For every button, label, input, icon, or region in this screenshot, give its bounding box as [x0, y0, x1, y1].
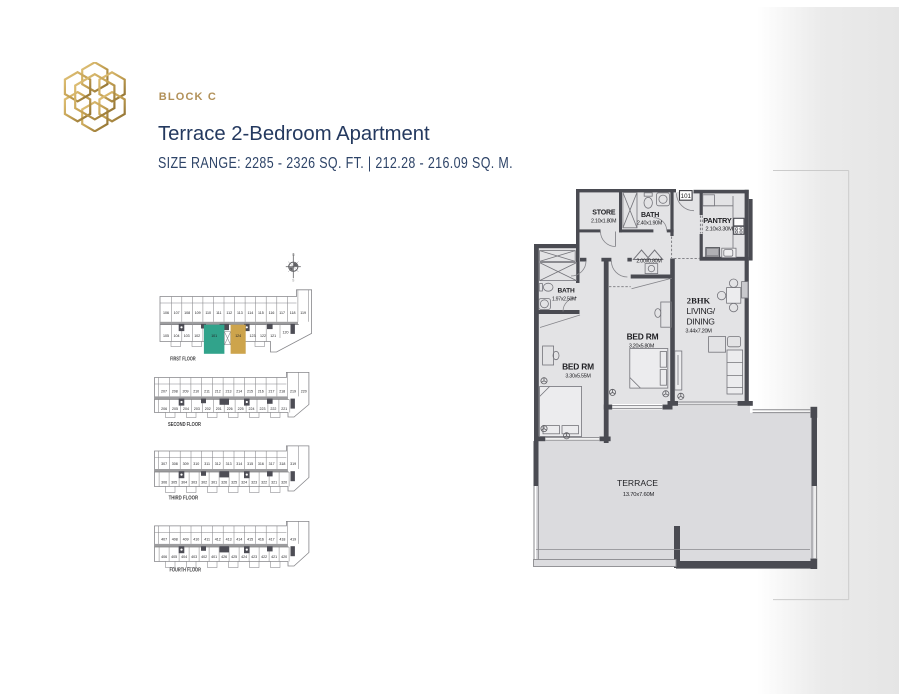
svg-text:111: 111: [216, 311, 221, 315]
svg-text:110: 110: [205, 311, 211, 315]
svg-text:320: 320: [281, 480, 287, 484]
svg-text:410: 410: [193, 537, 199, 541]
svg-text:2.10x1.80M: 2.10x1.80M: [591, 219, 617, 225]
svg-text:319: 319: [290, 462, 296, 466]
svg-text:318: 318: [279, 462, 285, 466]
svg-text:424: 424: [241, 555, 247, 559]
svg-text:108: 108: [184, 311, 190, 315]
svg-text:112: 112: [226, 311, 232, 315]
svg-text:3.20x5.80M: 3.20x5.80M: [629, 343, 655, 349]
svg-text:322: 322: [261, 480, 267, 484]
svg-text:SECOND FLOOR: SECOND FLOOR: [168, 422, 201, 428]
svg-text:106: 106: [163, 311, 169, 315]
svg-text:13.70x7.60M: 13.70x7.60M: [623, 492, 655, 498]
svg-text:BED RM: BED RM: [627, 332, 659, 342]
svg-text:326: 326: [221, 480, 227, 484]
svg-text:214: 214: [236, 389, 242, 393]
svg-text:3.30x5.55M: 3.30x5.55M: [565, 374, 591, 380]
svg-text:324: 324: [241, 480, 247, 484]
svg-text:N: N: [292, 253, 295, 257]
svg-text:407: 407: [161, 537, 167, 541]
svg-text:402: 402: [201, 555, 207, 559]
svg-text:304: 304: [181, 480, 187, 484]
svg-text:412: 412: [215, 537, 221, 541]
svg-text:212: 212: [215, 389, 221, 393]
svg-text:BATH: BATH: [641, 212, 659, 219]
svg-text:122: 122: [260, 334, 266, 338]
svg-text:311: 311: [204, 462, 210, 466]
svg-text:415: 415: [247, 537, 253, 541]
svg-text:PANTRY: PANTRY: [703, 216, 732, 225]
svg-text:211: 211: [204, 389, 210, 393]
svg-text:216: 216: [258, 389, 264, 393]
svg-text:403: 403: [191, 555, 197, 559]
svg-text:423: 423: [251, 555, 257, 559]
svg-text:426: 426: [221, 555, 227, 559]
svg-text:323: 323: [251, 480, 257, 484]
svg-text:1.97x2.50M: 1.97x2.50M: [552, 296, 576, 302]
svg-text:118: 118: [290, 311, 296, 315]
svg-text:303: 303: [191, 480, 197, 484]
svg-text:209: 209: [183, 389, 189, 393]
svg-text:LIVING/: LIVING/: [686, 306, 715, 316]
svg-text:401: 401: [211, 555, 217, 559]
svg-text:101: 101: [681, 193, 692, 200]
svg-text:124: 124: [235, 334, 241, 338]
svg-text:223: 223: [260, 407, 266, 411]
svg-text:307: 307: [161, 462, 167, 466]
svg-text:206: 206: [161, 407, 167, 411]
svg-text:102: 102: [194, 334, 200, 338]
svg-text:113: 113: [237, 311, 243, 315]
svg-text:217: 217: [269, 389, 275, 393]
svg-text:101: 101: [211, 334, 217, 338]
svg-text:221: 221: [281, 407, 287, 411]
svg-text:406: 406: [161, 555, 167, 559]
svg-text:116: 116: [269, 311, 275, 315]
svg-text:218: 218: [279, 389, 285, 393]
svg-text:419: 419: [290, 537, 296, 541]
svg-text:310: 310: [193, 462, 199, 466]
svg-text:416: 416: [258, 537, 264, 541]
svg-text:FIRST FLOOR: FIRST FLOOR: [170, 357, 196, 363]
svg-text:314: 314: [236, 462, 242, 466]
svg-text:226: 226: [227, 407, 233, 411]
svg-text:308: 308: [172, 462, 178, 466]
svg-text:2.00x0.80M: 2.00x0.80M: [636, 258, 662, 264]
svg-text:121: 121: [270, 334, 276, 338]
svg-text:213: 213: [226, 389, 232, 393]
svg-text:105: 105: [163, 334, 169, 338]
svg-text:120: 120: [283, 331, 289, 335]
svg-text:425: 425: [231, 555, 237, 559]
svg-text:418: 418: [279, 537, 285, 541]
svg-text:420: 420: [281, 555, 287, 559]
svg-text:2.10x3.30M: 2.10x3.30M: [705, 227, 733, 233]
svg-text:208: 208: [172, 389, 178, 393]
svg-text:201: 201: [216, 407, 222, 411]
svg-text:316: 316: [258, 462, 264, 466]
svg-text:409: 409: [183, 537, 189, 541]
svg-text:117: 117: [279, 311, 285, 315]
svg-text:422: 422: [261, 555, 267, 559]
svg-text:109: 109: [195, 311, 201, 315]
svg-text:215: 215: [247, 389, 253, 393]
svg-text:408: 408: [172, 537, 178, 541]
svg-text:115: 115: [258, 311, 264, 315]
svg-text:312: 312: [215, 462, 221, 466]
svg-text:306: 306: [161, 480, 167, 484]
svg-text:404: 404: [181, 555, 187, 559]
svg-text:309: 309: [183, 462, 189, 466]
svg-text:417: 417: [269, 537, 275, 541]
svg-text:BED RM: BED RM: [562, 362, 594, 372]
svg-text:421: 421: [271, 555, 277, 559]
svg-text:205: 205: [172, 407, 178, 411]
svg-text:3.44x7.20M: 3.44x7.20M: [685, 328, 712, 334]
svg-text:119: 119: [300, 311, 306, 315]
svg-text:315: 315: [247, 462, 253, 466]
svg-text:225: 225: [238, 407, 244, 411]
svg-text:204: 204: [183, 407, 189, 411]
svg-text:THIRD FLOOR: THIRD FLOOR: [169, 496, 199, 502]
svg-text:325: 325: [231, 480, 237, 484]
svg-text:S: S: [292, 278, 295, 282]
svg-text:203: 203: [194, 407, 200, 411]
svg-text:313: 313: [226, 462, 232, 466]
svg-text:2.40x1.90M: 2.40x1.90M: [637, 221, 663, 227]
svg-text:405: 405: [171, 555, 177, 559]
svg-text:104: 104: [174, 334, 180, 338]
svg-text:103: 103: [184, 334, 190, 338]
svg-text:321: 321: [271, 480, 277, 484]
svg-text:411: 411: [204, 537, 210, 541]
svg-text:114: 114: [248, 311, 254, 315]
svg-text:207: 207: [161, 389, 167, 393]
svg-text:219: 219: [290, 389, 296, 393]
svg-text:301: 301: [211, 480, 217, 484]
svg-text:2BHK: 2BHK: [687, 296, 711, 306]
svg-text:413: 413: [226, 537, 232, 541]
svg-text:TERRACE: TERRACE: [617, 478, 658, 488]
svg-text:202: 202: [205, 407, 211, 411]
svg-text:DINING: DINING: [686, 316, 715, 326]
svg-text:414: 414: [236, 537, 242, 541]
svg-text:BATH: BATH: [557, 287, 574, 294]
svg-text:302: 302: [201, 480, 207, 484]
svg-text:224: 224: [249, 407, 255, 411]
svg-text:STORE: STORE: [592, 210, 616, 217]
svg-text:107: 107: [174, 311, 180, 315]
svg-text:210: 210: [193, 389, 199, 393]
svg-text:317: 317: [269, 462, 275, 466]
svg-text:305: 305: [171, 480, 177, 484]
svg-text:123: 123: [250, 334, 256, 338]
svg-text:220: 220: [301, 389, 307, 393]
svg-text:FOURTH FLOOR: FOURTH FLOOR: [170, 568, 202, 574]
svg-text:222: 222: [270, 407, 276, 411]
